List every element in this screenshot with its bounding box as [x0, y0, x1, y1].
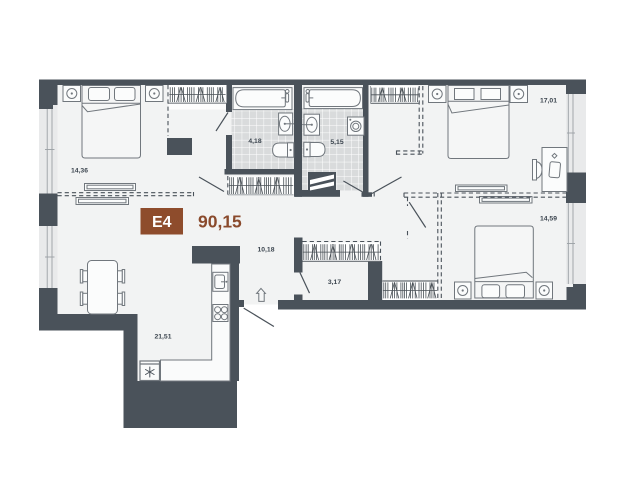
svg-text:14,59: 14,59	[540, 215, 557, 222]
svg-text:90,15: 90,15	[198, 212, 242, 232]
svg-text:21,51: 21,51	[154, 333, 171, 340]
svg-text:5,15: 5,15	[330, 139, 343, 146]
svg-text:4,18: 4,18	[248, 138, 261, 145]
svg-text:10,18: 10,18	[257, 246, 274, 253]
svg-text:3,17: 3,17	[328, 279, 341, 286]
svg-text:Е4: Е4	[152, 214, 172, 231]
svg-text:17,01: 17,01	[540, 97, 557, 104]
svg-text:14,36: 14,36	[71, 167, 88, 174]
